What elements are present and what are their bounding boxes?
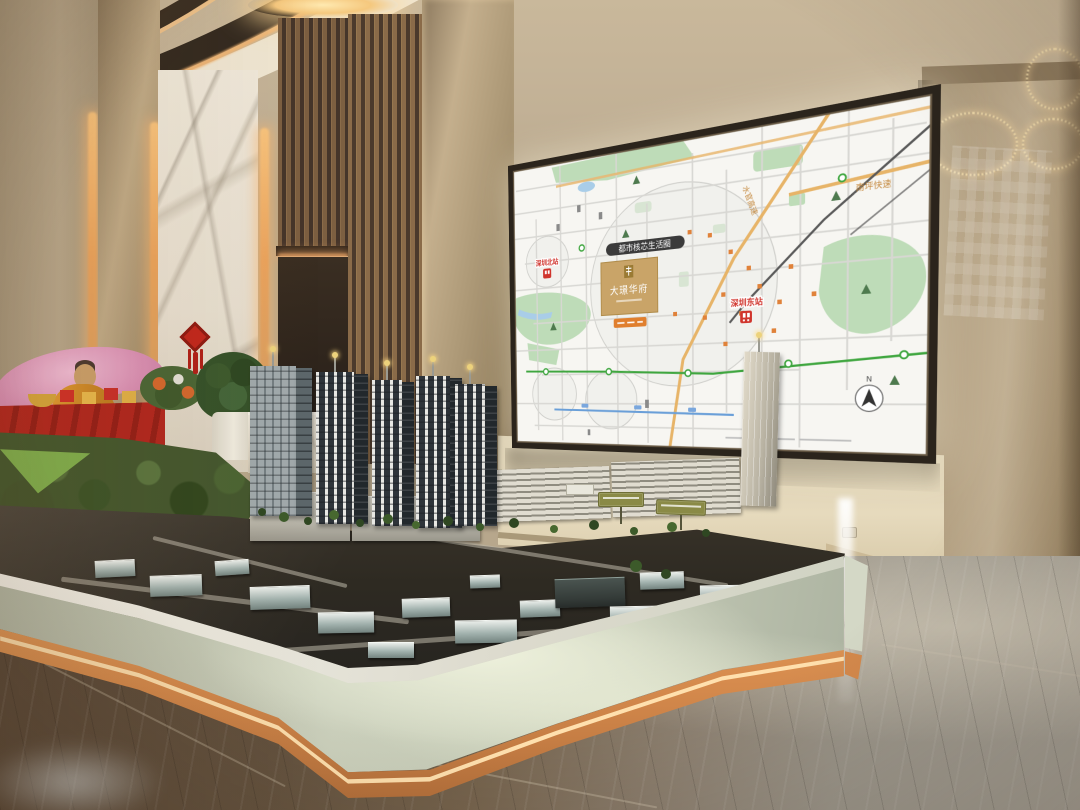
model-office-tower-side (296, 368, 312, 516)
knot-diamond (179, 321, 210, 352)
festive-items (60, 390, 74, 402)
sign-post (620, 504, 622, 524)
model-antenna (334, 357, 336, 372)
knot-tassel (193, 352, 198, 374)
model-residential-tower (455, 384, 485, 526)
model-antenna (758, 337, 760, 352)
train-icon (543, 268, 551, 279)
model-dark-block (555, 577, 626, 608)
street-name-sign (598, 492, 644, 507)
model-residential-tower (372, 380, 402, 526)
window-grid-reflection (944, 145, 1053, 320)
model-antenna (469, 369, 471, 384)
small-white-sign (566, 484, 594, 495)
model-glass-block (215, 559, 250, 576)
model-glass-block (640, 571, 685, 590)
model-tower-side (485, 386, 497, 526)
wood-slat-panel (278, 18, 348, 248)
model-residential-tower (416, 376, 450, 528)
model-antenna (272, 351, 274, 366)
model-glass-block (402, 597, 451, 618)
model-glass-block (318, 612, 374, 634)
model-residential-tower (316, 372, 354, 524)
model-glass-block (150, 574, 203, 597)
train-icon (740, 310, 752, 323)
model-office-tower (250, 366, 296, 516)
model-glass-block (250, 585, 311, 610)
model-glass-block (95, 559, 136, 578)
model-tower-side (402, 382, 414, 526)
model-trees (258, 508, 266, 516)
model-antenna (386, 365, 388, 380)
model-tall-glass-tower (740, 352, 780, 507)
chinese-knot-ornament (181, 322, 211, 386)
model-glass-block (455, 619, 517, 643)
street-name-sign (656, 499, 706, 516)
showroom-photo: 都市核芯生活圈 大璟华府 深圳东站 深圳北站 (0, 0, 1080, 810)
model-tower-side (354, 374, 368, 524)
right-edge-pillar (1058, 0, 1080, 600)
model-glass-block (368, 642, 414, 658)
model-glass-block (520, 599, 561, 617)
model-glass-block (470, 574, 500, 588)
compass-n-label: N (866, 375, 873, 384)
model-antenna (432, 361, 434, 376)
